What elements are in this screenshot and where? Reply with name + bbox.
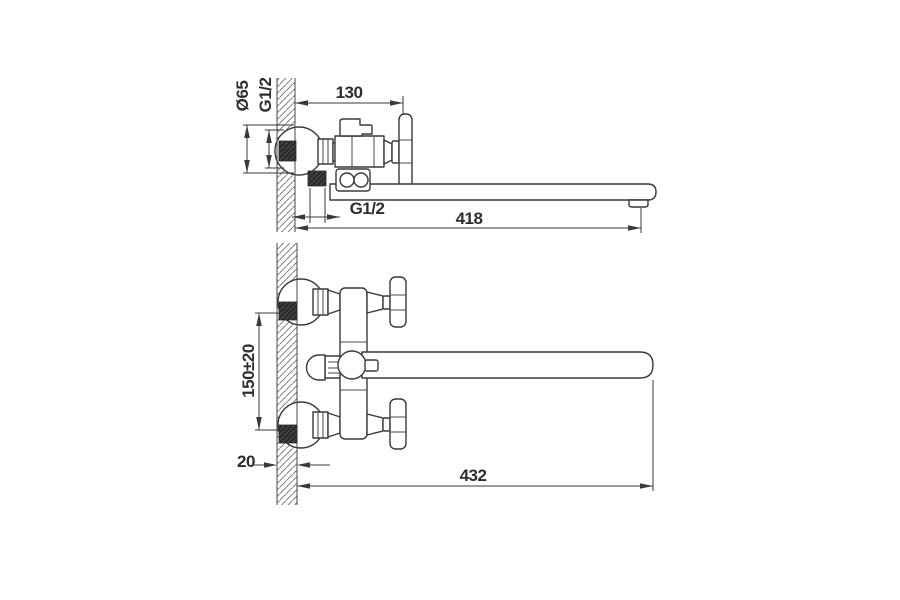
dim-inlet-centers: 150±20 [239, 313, 279, 430]
dim-depth-130-label: 130 [336, 83, 363, 102]
dim-flange-diameter-label: Ø65 [233, 81, 252, 112]
dim-spout-reach-418: 418 [295, 208, 641, 233]
side-view: 130 Ø65 G1/2 G1/2 [233, 78, 656, 233]
spout-nozzle-side [629, 200, 648, 207]
faucet-dimension-drawing: 130 Ø65 G1/2 G1/2 [0, 0, 900, 600]
diverter-knob-plan [338, 351, 366, 379]
cross-handle-plan-top [367, 277, 406, 327]
inlet-connector-bottom [313, 412, 340, 438]
cross-handle-plan-bottom [367, 399, 406, 449]
dim-shower-thread-label: G1/2 [350, 199, 385, 218]
shower-outlet-plan [306, 355, 340, 380]
dim-spout-reach-418-label: 418 [456, 209, 483, 228]
dim-spout-reach-432-label: 432 [460, 466, 487, 485]
wall-pipe-fitting-side [279, 141, 296, 161]
shower-outlet-fitting-side [308, 171, 326, 186]
wall-pipe-fitting-plan-top [279, 302, 297, 320]
plan-view: 150±20 20 432 [237, 243, 653, 505]
dim-depth-130: 130 [295, 83, 403, 114]
dim-inlet-centers-label: 150±20 [239, 344, 258, 398]
diverter-lever-side [340, 119, 372, 136]
dim-wall-thread-label: G1/2 [256, 78, 275, 113]
spout-side [330, 184, 656, 200]
dim-wall-thickness-label: 20 [237, 452, 255, 471]
technical-drawing-canvas: 130 Ø65 G1/2 G1/2 [0, 0, 900, 600]
wall-pipe-fitting-plan-bottom [279, 425, 297, 443]
diverter-tab-plan [365, 360, 378, 371]
cross-handle-side [384, 114, 412, 188]
inlet-connector-top [313, 289, 340, 315]
spout-plan [362, 352, 653, 378]
valve-body-side [318, 136, 384, 167]
spout-nut-side [336, 169, 370, 191]
